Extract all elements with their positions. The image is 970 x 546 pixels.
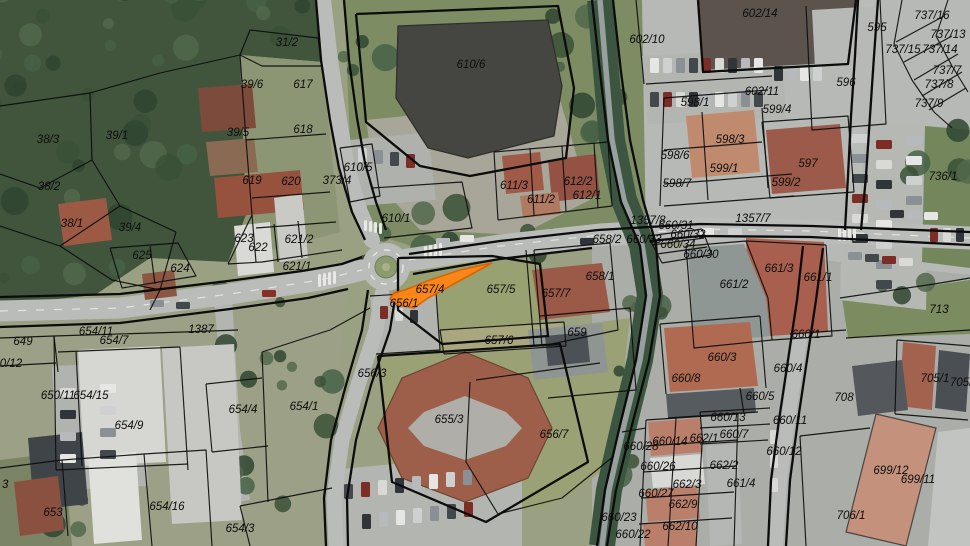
- parcel-label-658-1: 658/1: [586, 271, 615, 283]
- parcel-label-662-1: 662/1: [690, 433, 719, 445]
- car: [374, 150, 383, 164]
- car: [396, 510, 405, 525]
- parcel-label-373-4: 373/4: [323, 175, 352, 187]
- parcel-label-654-1: 654/1: [290, 401, 319, 413]
- tree: [916, 273, 935, 292]
- parcel-label-660-30: 660/30: [683, 249, 719, 261]
- parcel-label-705-1: 705/1: [921, 373, 950, 385]
- parcel-label-660-26: 660/26: [640, 461, 676, 473]
- parcel-label-621-1: 621/1: [283, 261, 312, 273]
- parcel-label-737-8: 737/8: [925, 79, 954, 91]
- car: [728, 92, 737, 107]
- building-house-653: [14, 476, 64, 536]
- tree: [70, 521, 86, 537]
- parcel-label-656-3: 656/3: [358, 368, 387, 380]
- tree: [24, 55, 41, 72]
- building-bldg-bl-b: [162, 344, 242, 524]
- parcel-label-38-3: 38/3: [37, 134, 60, 146]
- parcel-label-657-7: 657/7: [542, 288, 571, 300]
- parcel-label-610-1: 610/1: [382, 213, 411, 225]
- crosswalk-stripe: [323, 273, 326, 286]
- car: [390, 152, 399, 166]
- tree: [1, 187, 29, 215]
- parcel-label-596: 596: [836, 77, 856, 89]
- building-house-617: [198, 84, 256, 132]
- parcel-label-39-5: 39/5: [227, 127, 250, 139]
- tree: [81, 88, 95, 102]
- crosswalk-stripe: [328, 272, 331, 285]
- car: [956, 228, 964, 242]
- parcel-label-617: 617: [293, 79, 313, 91]
- tree: [443, 194, 471, 222]
- tree: [19, 23, 42, 46]
- car: [446, 472, 455, 487]
- car: [890, 210, 904, 218]
- parcel-label-654-3: 654/3: [226, 523, 255, 535]
- parcel-label-650-12: 650/12: [0, 358, 23, 370]
- parcel-label-660-23: 660/23: [601, 512, 637, 524]
- tree: [134, 89, 158, 113]
- parcel-label-622: 622: [248, 242, 268, 254]
- car: [60, 432, 76, 441]
- parcel-label-611-3: 611/3: [500, 180, 529, 192]
- parcel-label-662-9: 662/9: [669, 499, 698, 511]
- parcel-label-3: 3: [2, 479, 9, 491]
- parcel-label-660-11: 660/11: [773, 415, 807, 427]
- tree: [155, 154, 182, 181]
- parcel-label-31-2: 31/2: [276, 37, 299, 49]
- parcel-label-737-13: 737/13: [930, 29, 966, 41]
- tree: [63, 263, 86, 286]
- parcel-label-737-15: 737/15: [885, 44, 921, 56]
- crosswalk-stripe: [364, 220, 367, 231]
- parcel-label-598-7: 598/7: [663, 178, 692, 190]
- car: [380, 306, 388, 319]
- car: [852, 194, 868, 203]
- car: [361, 482, 370, 497]
- building-house-621: [274, 194, 308, 262]
- car: [430, 506, 439, 521]
- parcel-label-660-7: 660/7: [720, 429, 749, 441]
- parcel-label-737-14: 737/14: [922, 44, 957, 56]
- map-canvas[interactable]: 31/261739/661839/538/339/138/238/139/461…: [0, 0, 970, 546]
- building-bldg-bl-c: [88, 452, 142, 544]
- parcel-label-602-10: 602/10: [629, 34, 665, 46]
- car: [60, 410, 76, 419]
- parcel-label-598-6: 598/6: [661, 150, 690, 162]
- parcel-label-654-16: 654/16: [149, 501, 185, 513]
- parcel-label-660-4: 660/4: [774, 363, 803, 375]
- parcel-label-699-11: 699/11: [901, 474, 935, 486]
- tree: [277, 380, 287, 390]
- parcel-label-661-1: 661/1: [804, 272, 833, 284]
- parcel-label-610-5: 610/5: [344, 162, 373, 174]
- tree: [21, 256, 40, 275]
- tree: [56, 140, 79, 163]
- car: [907, 211, 921, 219]
- crosswalk-stripe: [333, 271, 336, 284]
- parcel-label-602-14: 602/14: [742, 8, 777, 20]
- crosswalk-stripe: [369, 221, 372, 232]
- tree: [411, 201, 435, 225]
- parcel-label-662-10: 662/10: [662, 521, 698, 533]
- car: [413, 508, 422, 523]
- parcel-label-654-9: 654/9: [115, 420, 144, 432]
- parcel-label-654-11: 654/11: [79, 326, 113, 338]
- car: [728, 228, 742, 235]
- parcel-label-656-7: 656/7: [540, 429, 569, 441]
- parcel-label-599-2: 599/2: [772, 177, 801, 189]
- parcel-label-612-1: 612/1: [573, 190, 602, 202]
- tree: [314, 376, 325, 387]
- car: [378, 480, 387, 495]
- car: [689, 58, 698, 73]
- car: [800, 66, 809, 81]
- parcel-label-611-2: 611/2: [527, 194, 556, 206]
- car: [412, 476, 421, 491]
- car: [852, 134, 868, 143]
- tree: [173, 35, 199, 61]
- building-bldg-bl-a: [78, 346, 166, 466]
- parcel-label-659: 659: [567, 327, 587, 339]
- parcel-label-38-1: 38/1: [61, 218, 83, 230]
- parcel-label-737-9: 737/9: [915, 98, 944, 110]
- car: [848, 252, 862, 260]
- parcel-label-660-5: 660/5: [746, 391, 775, 403]
- parcel-label-657-6: 657/6: [485, 335, 514, 347]
- car: [876, 200, 892, 209]
- car: [754, 58, 763, 73]
- car: [876, 140, 892, 149]
- car: [852, 214, 868, 223]
- parcel-label-660-1: 660/1: [792, 329, 821, 341]
- parcel-label-620: 620: [281, 176, 301, 188]
- parcel-label-625: 625: [132, 250, 152, 262]
- car: [262, 290, 276, 297]
- parcel-label-598-3: 598/3: [716, 134, 745, 146]
- car: [906, 176, 922, 185]
- parcel-label-660-33: 660/33: [626, 234, 662, 246]
- tree: [114, 144, 130, 160]
- parcel-label-598-1: 598/1: [681, 97, 710, 109]
- car: [813, 66, 822, 81]
- parcel-label-624: 624: [170, 263, 189, 275]
- parcel-label-660-13: 660/13: [710, 412, 746, 424]
- tree: [103, 18, 114, 29]
- parcel-label-602-11: 602/11: [745, 86, 779, 98]
- parcel-label-705-: 705/: [950, 377, 970, 389]
- car: [436, 238, 450, 245]
- parcel-label-39-4: 39/4: [119, 222, 141, 234]
- parcel-label-660-3: 660/3: [708, 352, 737, 364]
- parcel-label-708: 708: [834, 392, 854, 404]
- car: [924, 212, 938, 220]
- parcel-label-39-6: 39/6: [241, 79, 264, 91]
- car: [906, 196, 922, 205]
- parcel-label-618: 618: [293, 124, 313, 136]
- parcel-label-595: 595: [867, 22, 887, 34]
- parcel-label-657-5: 657/5: [487, 284, 516, 296]
- car: [676, 58, 685, 73]
- crosswalk-stripe: [374, 222, 377, 233]
- car: [852, 154, 868, 163]
- tree: [372, 44, 399, 71]
- parcel-label-660-12: 660/12: [766, 446, 802, 458]
- map-viewport[interactable]: 31/261739/661839/538/339/138/238/139/461…: [0, 0, 970, 546]
- tree: [256, 6, 270, 20]
- tree: [4, 74, 26, 96]
- parcel-label-38-2: 38/2: [38, 181, 61, 193]
- parcel-label-661-2: 661/2: [720, 279, 749, 291]
- parcel-label-1387: 1387: [188, 324, 214, 336]
- car: [876, 280, 892, 289]
- car: [100, 428, 116, 437]
- car: [663, 58, 672, 73]
- parcel-label-661-3: 661/3: [765, 263, 794, 275]
- car: [865, 254, 879, 262]
- tree: [287, 362, 297, 372]
- car: [379, 512, 388, 527]
- car: [899, 258, 913, 266]
- parcel-label-654-4: 654/4: [229, 404, 258, 416]
- crosswalk-stripe: [318, 274, 321, 287]
- parcel-label-599-4: 599/4: [763, 104, 792, 116]
- car: [429, 474, 438, 489]
- parcel-label-655-3: 655/3: [435, 414, 464, 426]
- tree: [46, 55, 61, 70]
- car: [176, 302, 190, 309]
- parcel-label-713: 713: [929, 304, 949, 316]
- parcel-label-610-6: 610/6: [457, 59, 486, 71]
- parcel-label-653: 653: [43, 507, 63, 519]
- car: [100, 406, 116, 415]
- car: [650, 92, 659, 107]
- tree: [105, 40, 116, 51]
- parcel-label-39-1: 39/1: [106, 130, 128, 142]
- car: [906, 156, 922, 165]
- tree: [152, 55, 164, 67]
- parcel-label-599-1: 599/1: [710, 163, 739, 175]
- car: [882, 256, 896, 264]
- parcel-label-737-7: 737/7: [933, 65, 962, 77]
- parcel-label-619: 619: [242, 175, 262, 187]
- car: [362, 514, 371, 529]
- parcel-label-654-15: 654/15: [73, 390, 109, 402]
- parcel-label-736-1: 736/1: [929, 171, 958, 183]
- tree: [946, 119, 969, 142]
- car: [876, 160, 892, 169]
- car: [650, 58, 659, 73]
- parcel-label-662-2: 662/2: [710, 460, 739, 472]
- parcel-label-621-2: 621/2: [285, 234, 314, 246]
- parcel-label-656-1: 656/1: [390, 298, 419, 310]
- parcel-label-658-2: 658/2: [593, 234, 622, 246]
- parcel-label-660-8: 660/8: [672, 373, 701, 385]
- parcel-label-662-3: 662/3: [673, 479, 702, 491]
- tree: [36, 9, 50, 23]
- parcel-label-649: 649: [13, 336, 33, 348]
- car: [100, 450, 116, 459]
- parcel-label-706-1: 706/1: [837, 510, 866, 522]
- parcel-label-612-2: 612/2: [564, 176, 593, 188]
- building-bldg-708: [852, 360, 908, 416]
- parcel-label-661-4: 661/4: [727, 478, 756, 490]
- parcel-label-657-4: 657/4: [416, 284, 445, 296]
- parcel-label-660-22: 660/22: [615, 529, 651, 541]
- car: [460, 235, 474, 242]
- tree: [274, 350, 286, 362]
- roundabout-center: [382, 263, 390, 271]
- parcel-label-660-28: 660/28: [623, 441, 659, 453]
- car: [906, 136, 922, 145]
- parcel-label-1357-7: 1357/7: [735, 213, 771, 225]
- car: [463, 470, 472, 485]
- parcel-label-650-11: 650/11: [41, 390, 75, 402]
- building-school: [396, 20, 562, 158]
- building-house-618: [206, 138, 258, 176]
- car: [876, 180, 892, 189]
- parcel-label-737-16: 737/16: [914, 10, 950, 22]
- parcel-label-597: 597: [798, 158, 818, 170]
